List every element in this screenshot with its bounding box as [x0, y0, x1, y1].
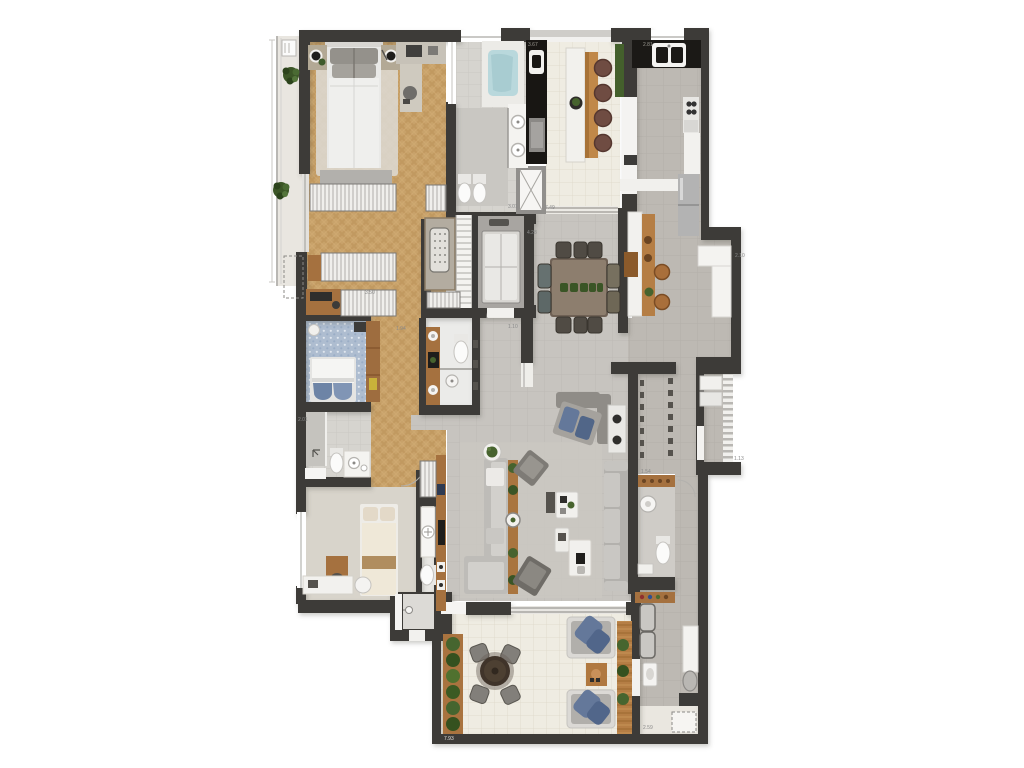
svg-text:3.01: 3.01 [508, 204, 518, 210]
svg-text:2.81: 2.81 [643, 42, 653, 48]
svg-text:2.59: 2.59 [643, 725, 653, 731]
svg-text:7.49: 7.49 [545, 205, 555, 211]
svg-text:1.10: 1.10 [508, 324, 518, 330]
svg-text:1.94: 1.94 [396, 326, 406, 332]
svg-text:4.28: 4.28 [527, 230, 537, 236]
svg-text:1.13: 1.13 [734, 456, 744, 462]
svg-text:2.10: 2.10 [735, 253, 745, 259]
svg-text:3.50: 3.50 [365, 290, 375, 296]
svg-text:1.54: 1.54 [641, 469, 651, 475]
svg-text:7.93: 7.93 [444, 736, 454, 742]
svg-text:3.67: 3.67 [528, 42, 538, 48]
svg-text:2.01: 2.01 [298, 417, 308, 423]
